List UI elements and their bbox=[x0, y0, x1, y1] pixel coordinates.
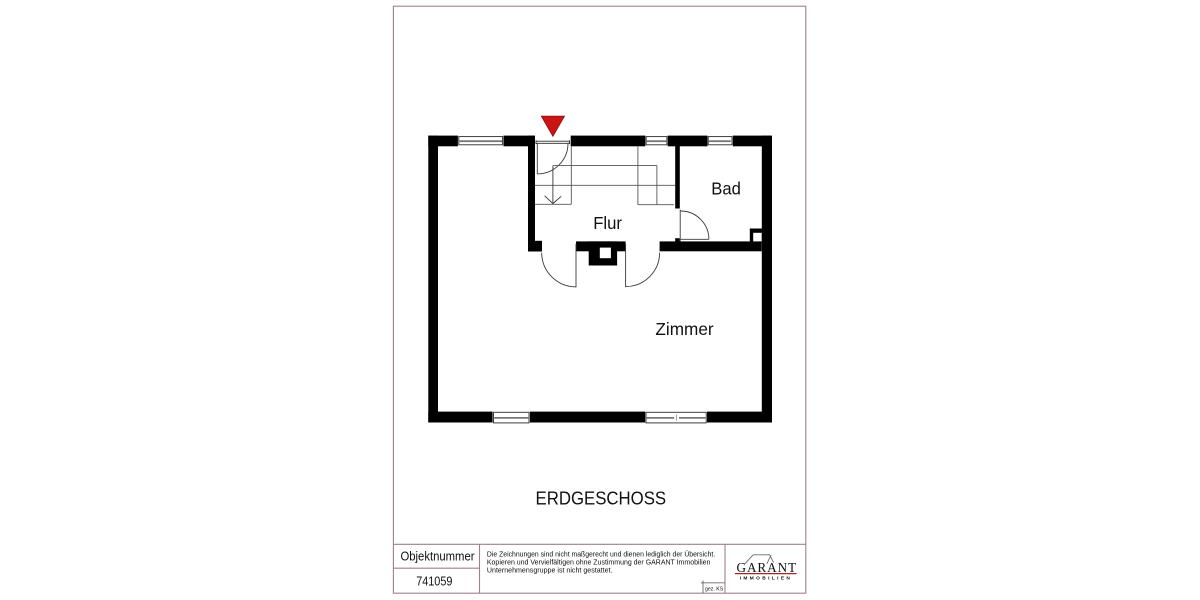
svg-text:Flur: Flur bbox=[593, 213, 622, 233]
svg-text:Bad: Bad bbox=[711, 179, 741, 199]
svg-text:IMMOBILIEN: IMMOBILIEN bbox=[740, 576, 791, 582]
svg-text:ERDGESCHOSS: ERDGESCHOSS bbox=[536, 488, 667, 509]
svg-text:gez. KS: gez. KS bbox=[705, 586, 723, 592]
svg-text:GARANT: GARANT bbox=[737, 560, 797, 575]
svg-text:Objektnummer: Objektnummer bbox=[401, 550, 475, 564]
svg-text:Unternehmensgruppe ist nicht g: Unternehmensgruppe ist nicht gestattet. bbox=[487, 565, 613, 574]
svg-text:741059: 741059 bbox=[416, 575, 452, 589]
svg-text:Zimmer: Zimmer bbox=[655, 319, 713, 339]
